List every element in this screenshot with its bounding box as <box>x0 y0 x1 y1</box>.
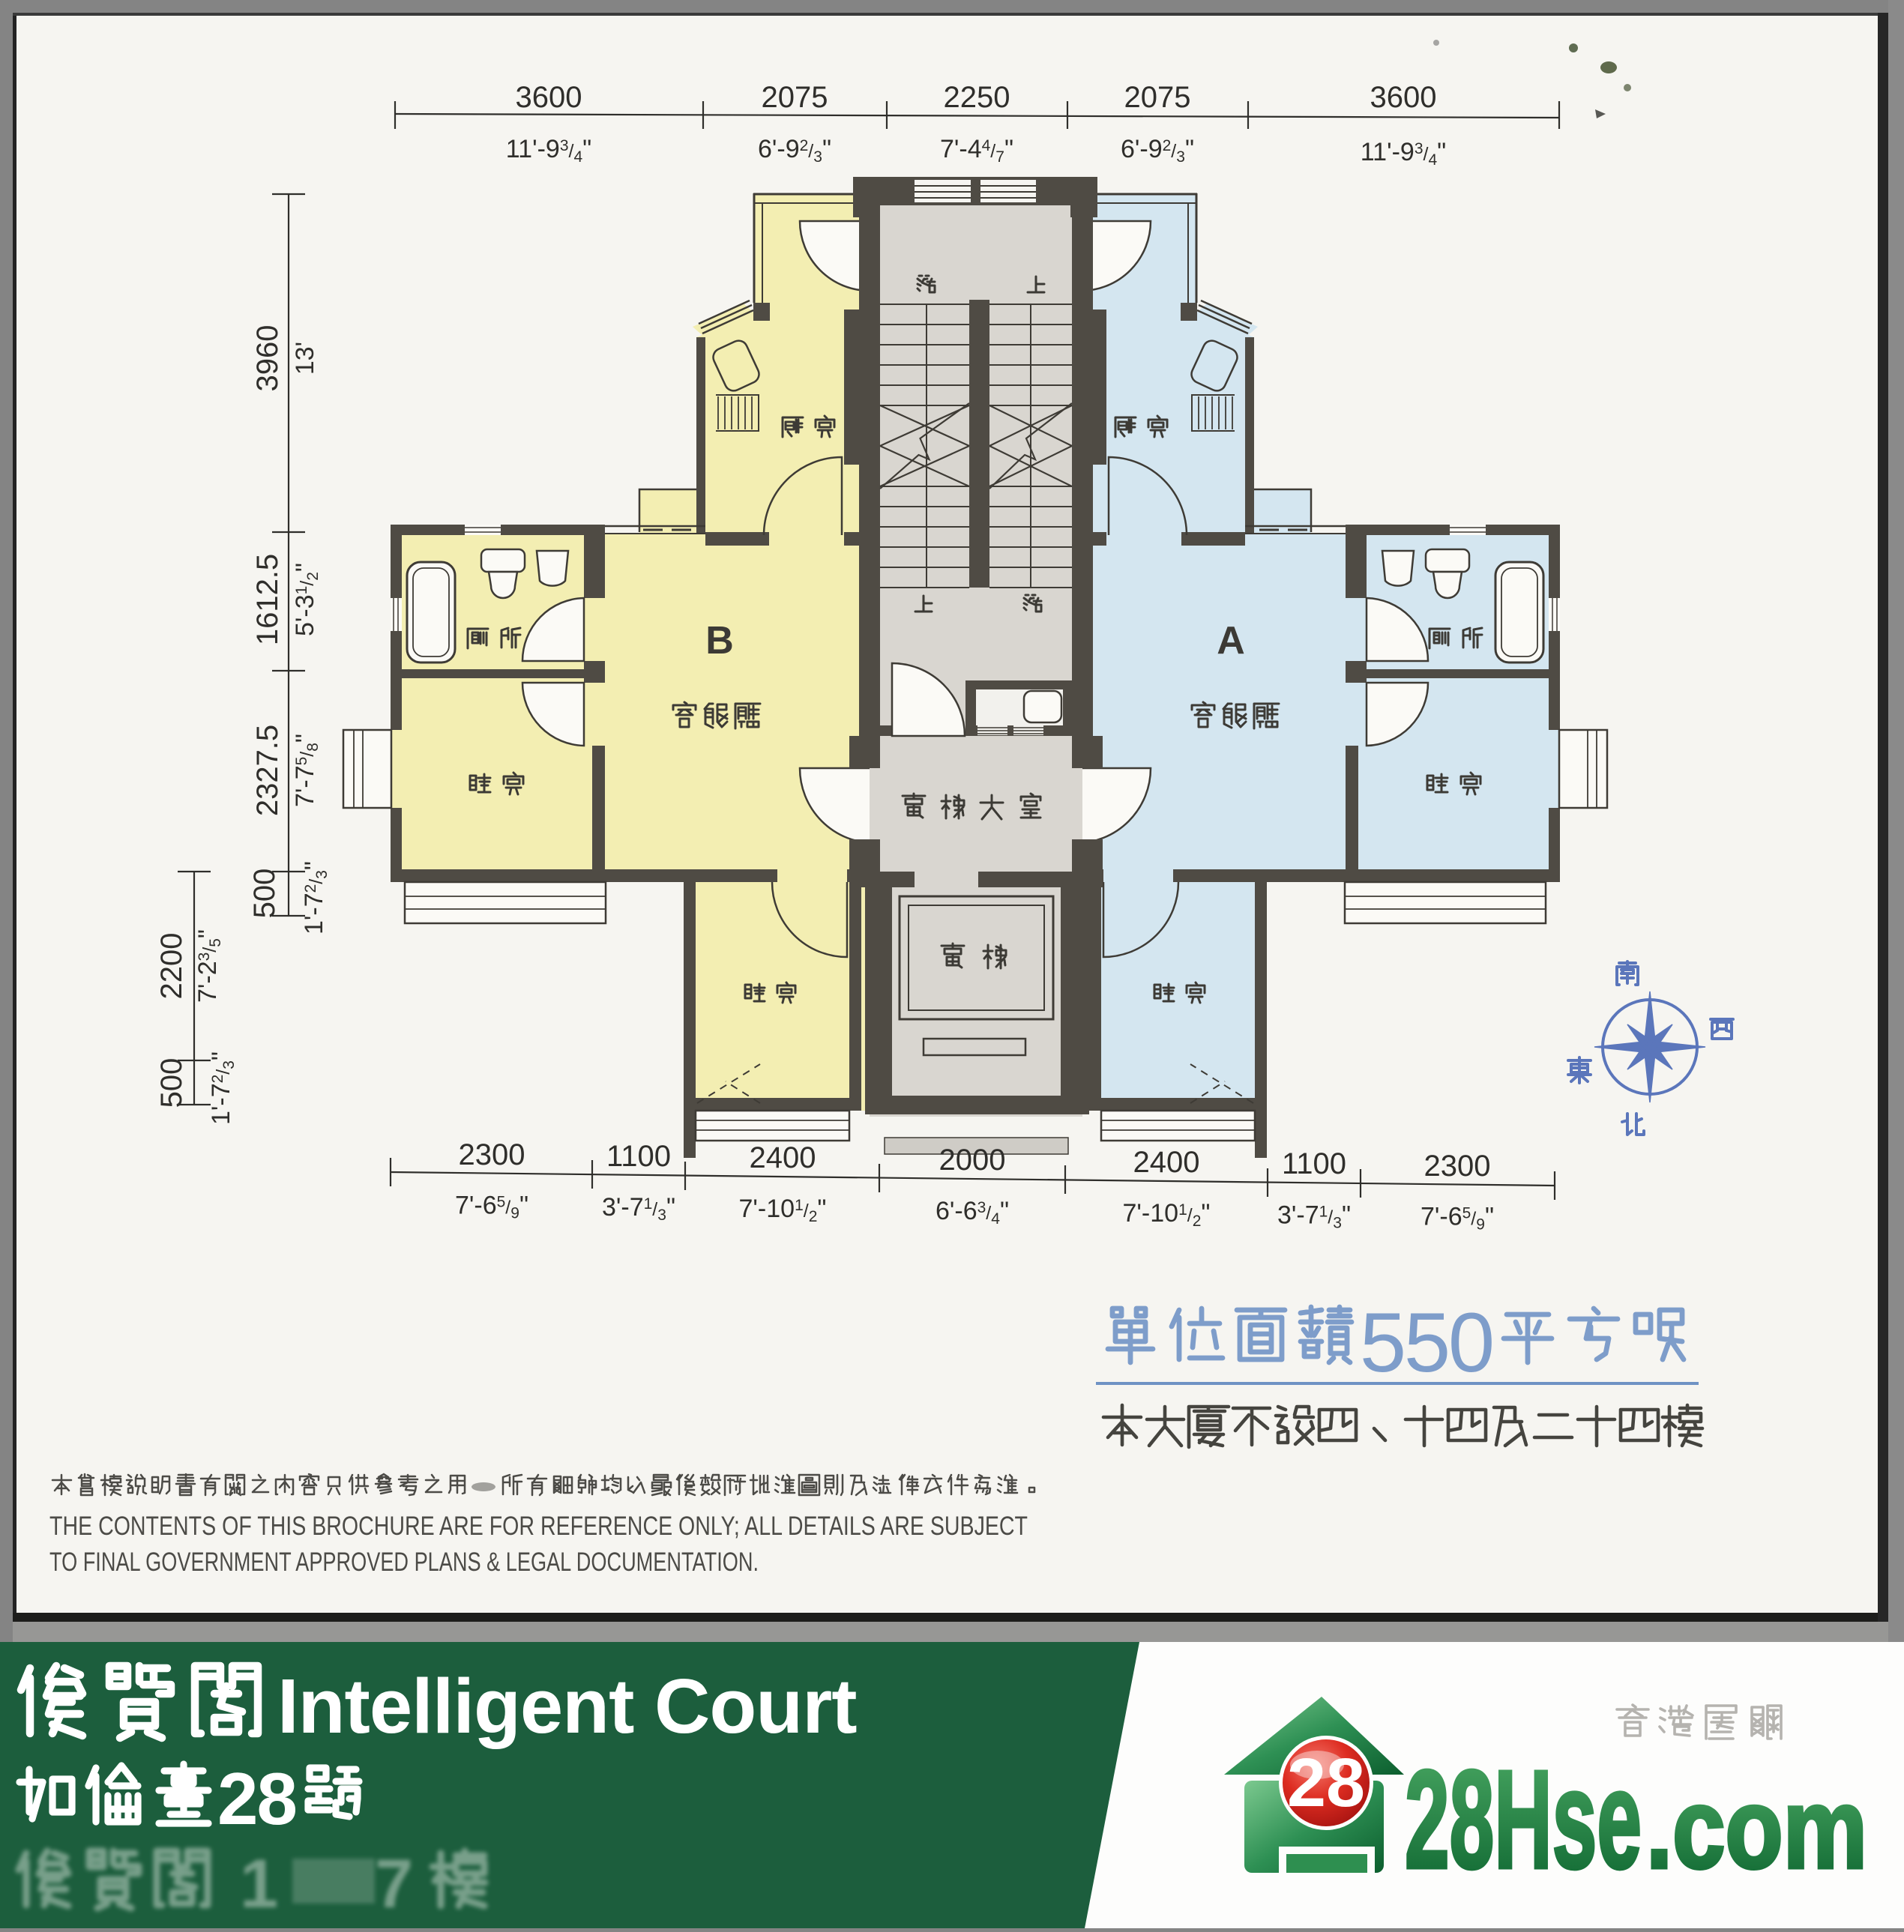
svg-text:1612.5: 1612.5 <box>251 554 284 645</box>
svg-text:5: 5 <box>1360 1296 1406 1389</box>
svg-text:Intelligent Court: Intelligent Court <box>277 1663 857 1749</box>
svg-text:2327.5: 2327.5 <box>251 725 284 816</box>
svg-text:2250: 2250 <box>944 81 1010 114</box>
svg-text:3960: 3960 <box>251 325 284 392</box>
svg-text:2400: 2400 <box>750 1141 816 1174</box>
svg-text:2000: 2000 <box>939 1144 1006 1177</box>
svg-text:500: 500 <box>155 1058 188 1108</box>
svg-text:1100: 1100 <box>606 1140 671 1173</box>
svg-text:1: 1 <box>240 1846 278 1922</box>
svg-text:28: 28 <box>217 1757 296 1840</box>
svg-text:1100: 1100 <box>1282 1147 1346 1180</box>
svg-text:B: B <box>705 619 734 662</box>
svg-text:2075: 2075 <box>762 81 828 114</box>
svg-text:2300: 2300 <box>459 1138 525 1171</box>
svg-text:.com: .com <box>1646 1765 1867 1892</box>
svg-text:2400: 2400 <box>1133 1146 1200 1179</box>
svg-text:28Hse: 28Hse <box>1405 1742 1642 1898</box>
svg-text:THE CONTENTS OF THIS BROCHURE: THE CONTENTS OF THIS BROCHURE ARE FOR RE… <box>49 1512 1028 1541</box>
svg-text:2300: 2300 <box>1424 1150 1491 1183</box>
svg-text:7: 7 <box>375 1846 413 1922</box>
svg-text:TO FINAL GOVERNMENT APPROVED P: TO FINAL GOVERNMENT APPROVED PLANS & LEG… <box>49 1548 759 1577</box>
svg-text:2075: 2075 <box>1124 81 1191 114</box>
svg-text:A: A <box>1217 619 1245 662</box>
svg-text:28: 28 <box>1287 1745 1365 1821</box>
svg-text:3600: 3600 <box>516 81 582 114</box>
svg-text:3600: 3600 <box>1370 81 1437 114</box>
svg-text:5: 5 <box>1404 1296 1450 1389</box>
svg-text:500: 500 <box>248 869 281 919</box>
svg-text:13': 13' <box>291 342 319 375</box>
svg-text:2200: 2200 <box>155 933 188 1000</box>
svg-text:0: 0 <box>1448 1296 1495 1389</box>
